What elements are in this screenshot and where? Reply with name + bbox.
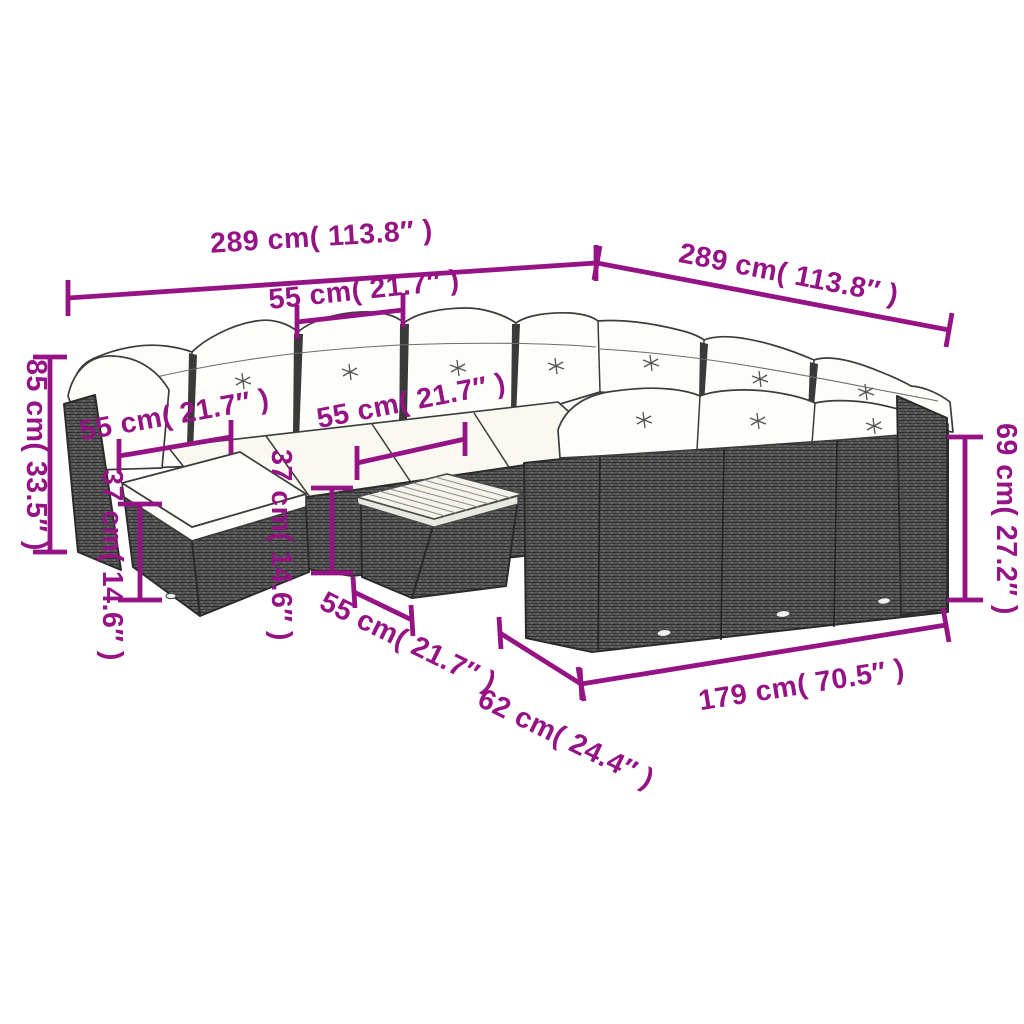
dimension-label-table-depth: 62 cm( 24.4″ )	[473, 683, 659, 796]
front-section-base	[524, 430, 948, 652]
dimension-back-height-right: 69 cm( 27.2″ )	[947, 423, 1022, 615]
dimension-diagram: 289 cm( 113.8″ ) 289 cm( 113.8″ ) 55 cm(…	[0, 0, 1024, 1024]
coffee-table	[357, 474, 523, 598]
dimension-total-height-left: 85 cm( 33.5″ )	[20, 357, 67, 552]
diagram-canvas: 289 cm( 113.8″ ) 289 cm( 113.8″ ) 55 cm(…	[0, 0, 1024, 1024]
sofa-set-drawing	[64, 308, 953, 652]
ottoman-foot	[166, 593, 176, 598]
dimension-label-seat-height-mid: 37 cm( 14.6″ )	[265, 449, 297, 641]
dimension-label-seat-height-left: 37 cm( 14.6″ )	[96, 469, 128, 661]
dimension-label-table-width-front: 55 cm( 21.7″ )	[315, 586, 501, 699]
right-armrest	[897, 396, 947, 615]
dimension-label-total-height-left: 85 cm( 33.5″ )	[20, 359, 52, 551]
dimension-label-seat-width-top: 55 cm( 21.7″ )	[267, 264, 461, 316]
dimension-label-back-height-right: 69 cm( 27.2″ )	[990, 423, 1022, 615]
dimension-label-back-width-left: 289 cm( 113.8″ )	[209, 214, 433, 260]
